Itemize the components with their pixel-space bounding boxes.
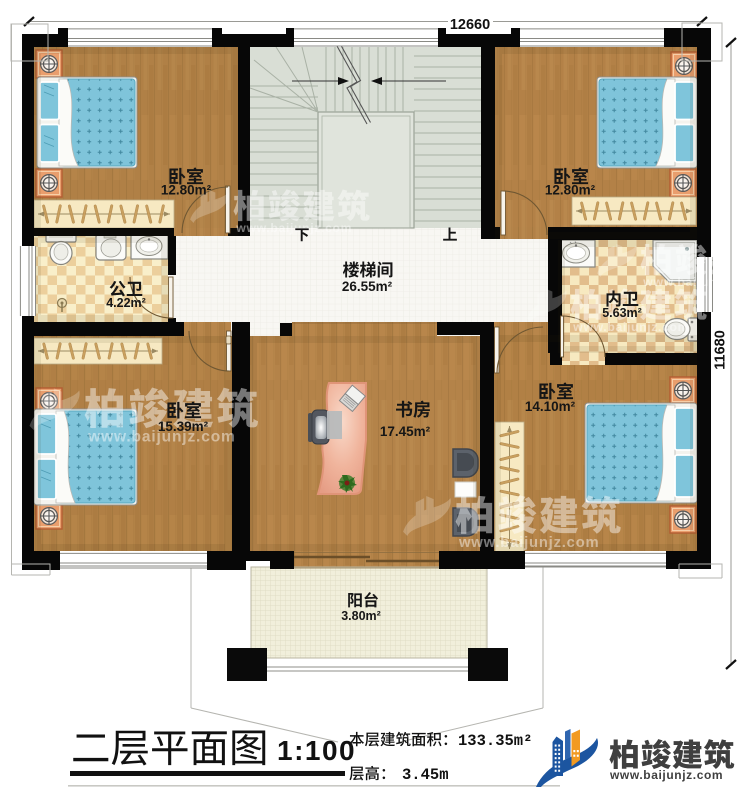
svg-text:www.baijunjz.com: www.baijunjz.com <box>609 768 723 782</box>
svg-text:12.80m²: 12.80m² <box>161 183 212 198</box>
svg-text:1:100: 1:100 <box>277 735 356 766</box>
svg-text:26.55m²: 26.55m² <box>342 279 393 294</box>
svg-text:133.35m²: 133.35m² <box>458 732 532 750</box>
svg-text:3.80m²: 3.80m² <box>341 609 381 623</box>
svg-text:12.80m²: 12.80m² <box>545 183 596 198</box>
svg-text:www.baijunjz.com: www.baijunjz.com <box>572 320 689 334</box>
svg-text:www.baijunjz.com: www.baijunjz.com <box>235 221 352 235</box>
svg-text:3.45m: 3.45m <box>402 766 449 784</box>
svg-text:15.39m²: 15.39m² <box>158 419 209 434</box>
svg-text:5.63m²: 5.63m² <box>602 306 642 320</box>
svg-text:www.baijunjz.com: www.baijunjz.com <box>642 275 750 289</box>
svg-text:14.10m²: 14.10m² <box>525 399 576 414</box>
svg-text:www.baijunjz.com: www.baijunjz.com <box>458 535 600 551</box>
svg-text:12660: 12660 <box>450 17 490 33</box>
svg-text:11680: 11680 <box>713 330 729 370</box>
svg-text:17.45m²: 17.45m² <box>380 424 431 439</box>
svg-text:4.22m²: 4.22m² <box>106 296 146 310</box>
